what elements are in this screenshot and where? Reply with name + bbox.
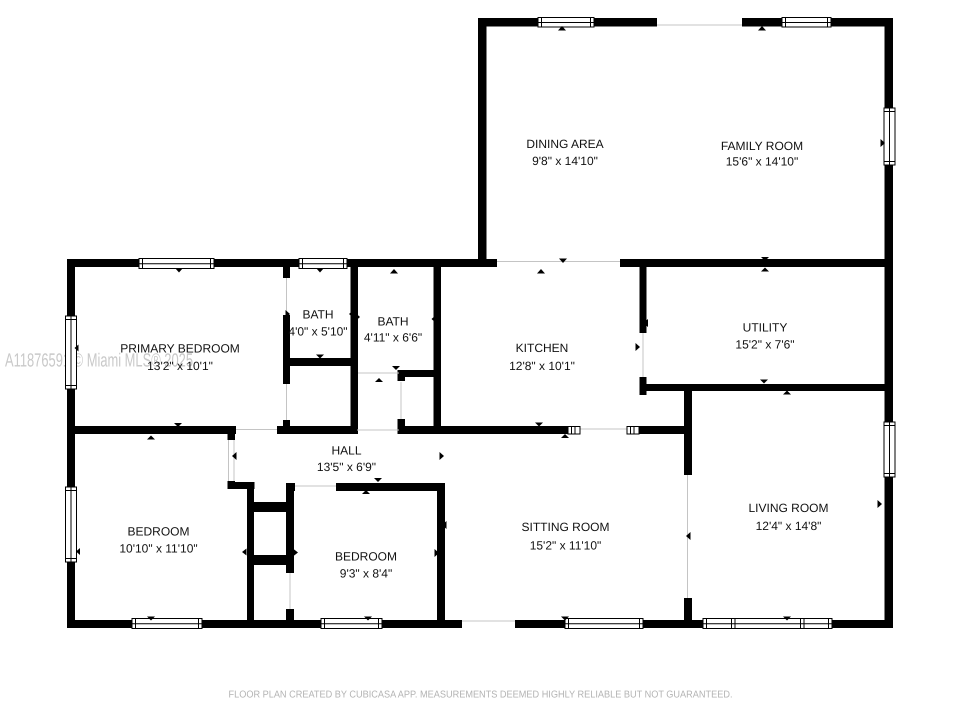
svg-text:HALL: HALL: [331, 444, 361, 458]
svg-text:10'10" x 11'10": 10'10" x 11'10": [119, 542, 197, 556]
svg-text:BATH: BATH: [302, 308, 333, 322]
svg-text:BEDROOM: BEDROOM: [127, 525, 189, 539]
svg-text:15'2" x 7'6": 15'2" x 7'6": [735, 338, 794, 352]
svg-text:15'6" x 14'10": 15'6" x 14'10": [726, 155, 799, 169]
svg-text:LIVING ROOM: LIVING ROOM: [748, 501, 828, 515]
svg-text:FLOOR PLAN CREATED BY CUBICASA: FLOOR PLAN CREATED BY CUBICASA APP. MEAS…: [229, 690, 733, 701]
svg-text:4'11" x 6'6": 4'11" x 6'6": [364, 331, 422, 345]
svg-text:FAMILY ROOM: FAMILY ROOM: [721, 139, 803, 153]
svg-text:9'8" x 14'10": 9'8" x 14'10": [532, 154, 598, 168]
svg-text:BATH: BATH: [377, 315, 408, 329]
svg-text:KITCHEN: KITCHEN: [516, 341, 569, 355]
svg-text:SITTING ROOM: SITTING ROOM: [522, 520, 610, 534]
svg-text:9'3" x 8'4": 9'3" x 8'4": [340, 567, 392, 581]
svg-text:4'0" x 5'10": 4'0" x 5'10": [288, 325, 347, 339]
svg-text:UTILITY: UTILITY: [743, 321, 788, 335]
svg-text:13'2" x 10'1": 13'2" x 10'1": [147, 359, 213, 373]
svg-text:12'8" x 10'1": 12'8" x 10'1": [509, 359, 575, 373]
svg-text:12'4" x 14'8": 12'4" x 14'8": [756, 519, 822, 533]
svg-text:PRIMARY BEDROOM: PRIMARY BEDROOM: [120, 342, 240, 356]
svg-text:15'2" x 11'10": 15'2" x 11'10": [530, 539, 602, 553]
svg-text:DINING AREA: DINING AREA: [526, 137, 603, 151]
svg-text:13'5" x 6'9": 13'5" x 6'9": [317, 460, 376, 474]
svg-text:BEDROOM: BEDROOM: [335, 550, 397, 564]
